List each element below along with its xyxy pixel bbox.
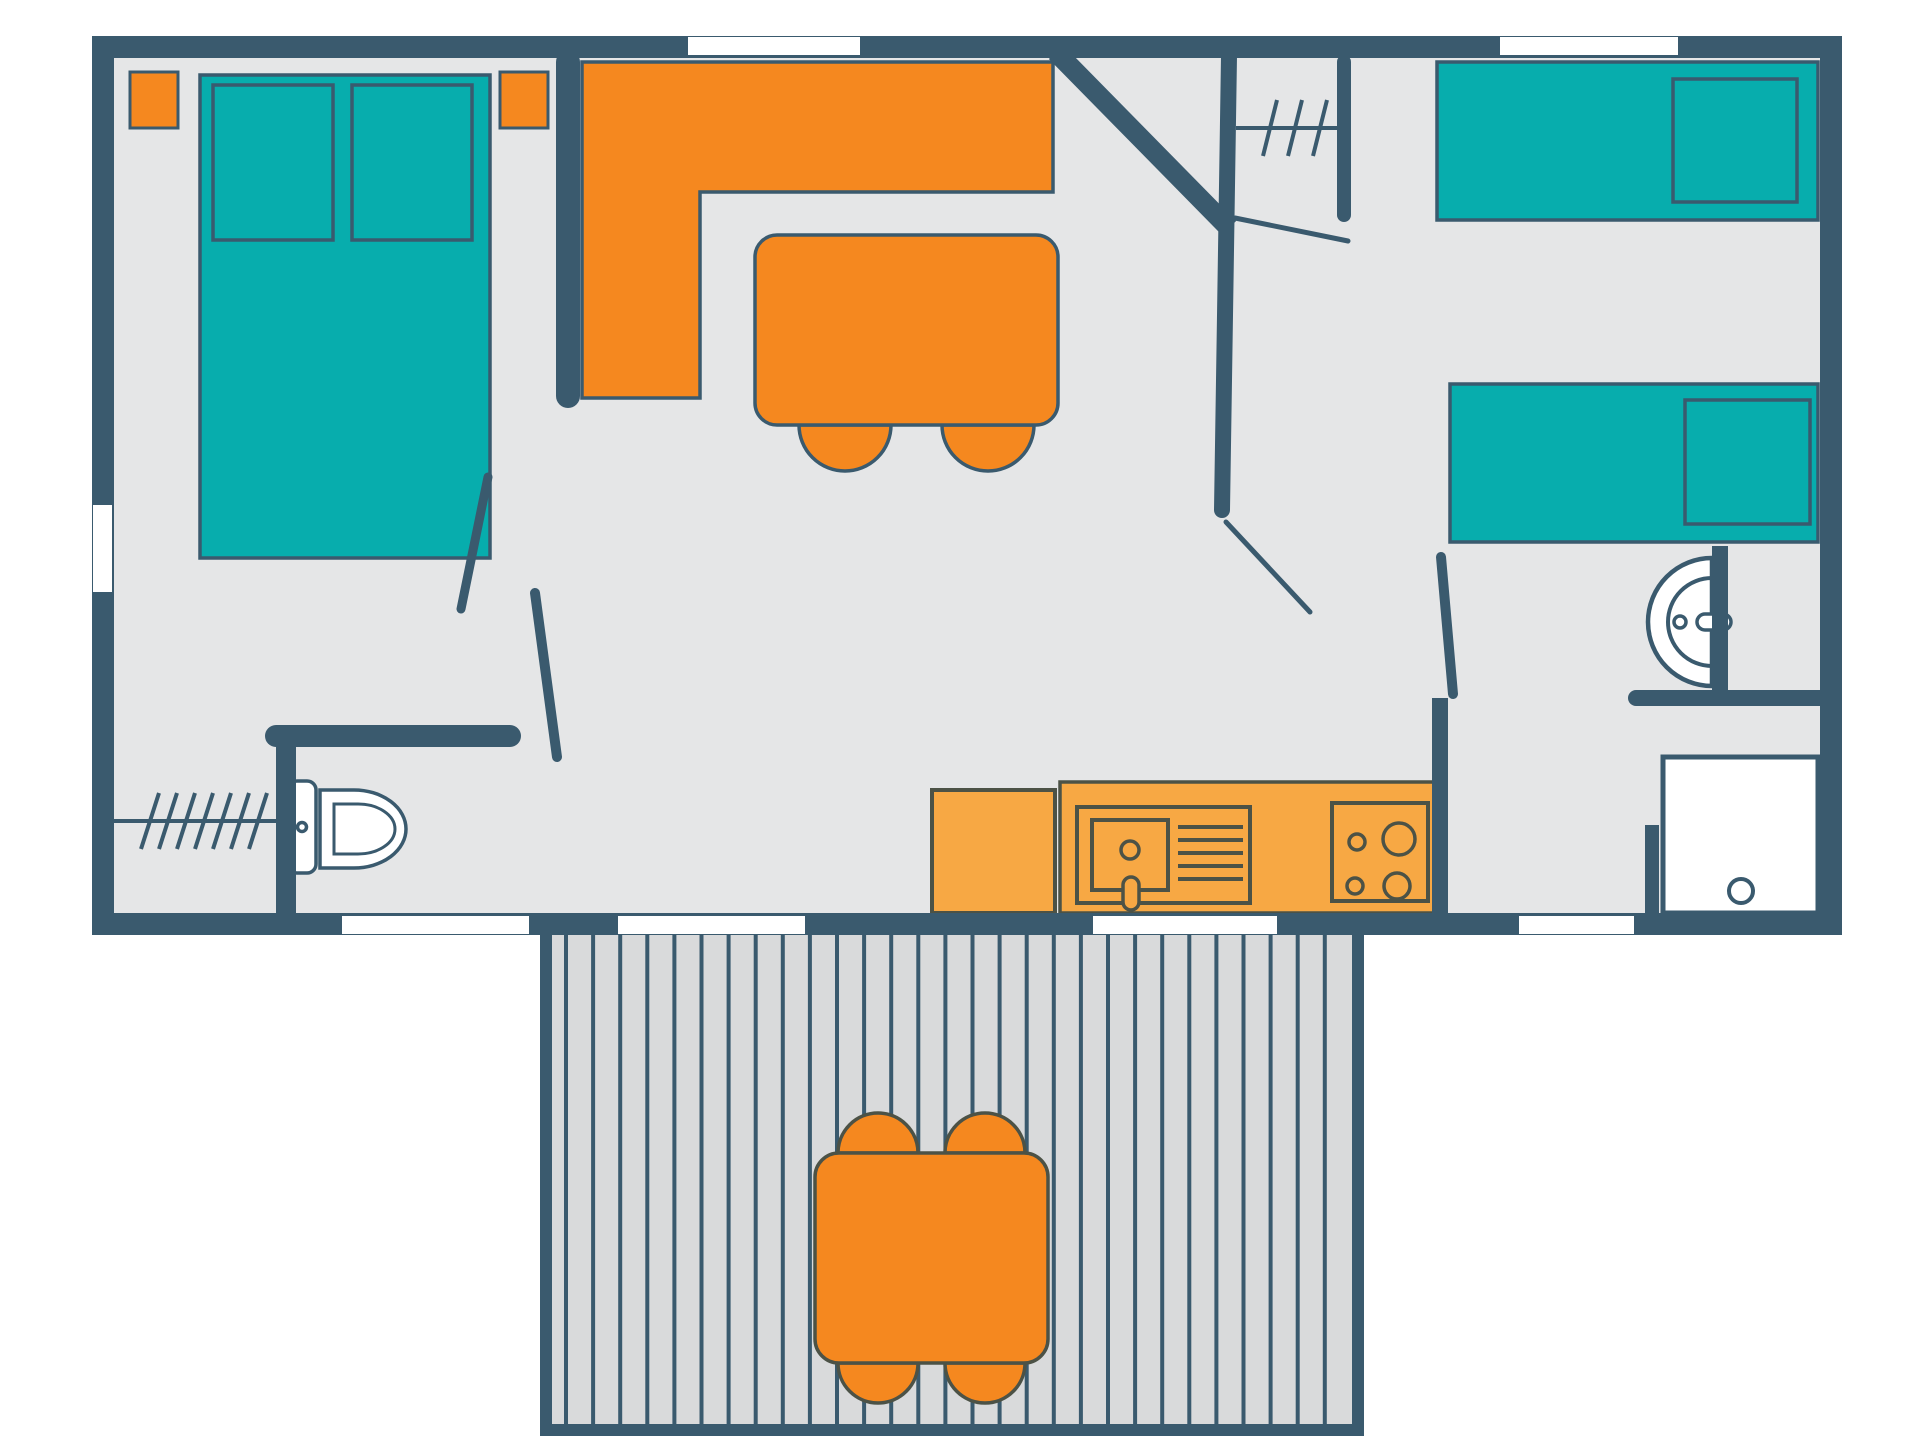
window-left-bedroom xyxy=(93,505,112,592)
wall-right xyxy=(1820,36,1842,935)
nightstand-left xyxy=(130,72,178,128)
floor-plan-page xyxy=(0,0,1920,1440)
terrace-border-right xyxy=(1352,935,1364,1436)
shower-drain xyxy=(1729,879,1753,903)
window-top-living xyxy=(688,37,860,55)
toilet-button xyxy=(298,823,307,832)
fridge xyxy=(932,790,1055,913)
sink-faucet xyxy=(1123,877,1139,910)
window-bottom-wc xyxy=(342,916,529,934)
window-bottom-kitchen xyxy=(1093,916,1277,934)
wall-left xyxy=(92,36,114,935)
kitchen xyxy=(932,782,1437,913)
dining-table xyxy=(755,235,1058,425)
pillow xyxy=(352,85,472,240)
window-bottom-bath xyxy=(1519,916,1634,934)
pillow xyxy=(1685,400,1810,524)
window-top-kids xyxy=(1500,37,1678,55)
floor-plan-canvas xyxy=(0,0,1920,1440)
terrace-border-left xyxy=(540,935,552,1436)
wall-hall-vertical xyxy=(1222,56,1229,510)
terrace xyxy=(540,935,1364,1436)
window-bottom-living xyxy=(618,916,805,934)
pillow xyxy=(1673,79,1797,202)
washbasin-drain xyxy=(1674,616,1686,628)
pillow xyxy=(213,85,333,240)
terrace-border-bottom xyxy=(540,1424,1364,1436)
terrace-table xyxy=(815,1153,1048,1363)
nightstand-right xyxy=(500,72,548,128)
